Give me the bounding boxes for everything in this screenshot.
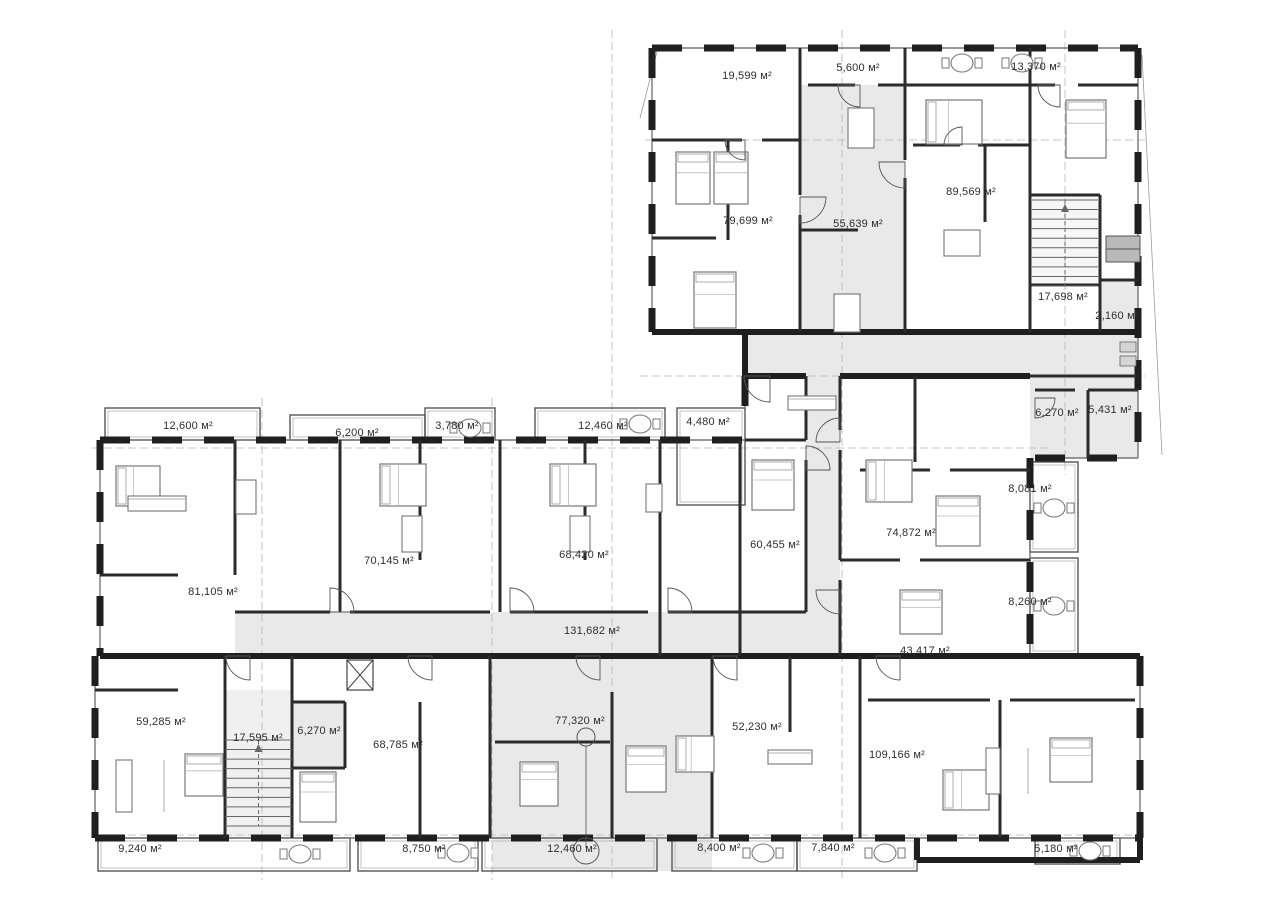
bed-frame [943,770,989,810]
chair [776,848,783,858]
area-label-balcony-9240: 9,240 м² [118,843,162,855]
chair [280,849,287,859]
chair [942,58,949,68]
table [944,230,980,256]
bed [1066,100,1106,158]
door-swing [408,656,432,680]
corridor [806,332,840,612]
sofa [768,750,812,764]
bed-frame [936,496,980,546]
area-label-balcony-8081: 8,081 м² [1008,483,1052,495]
bed [926,100,982,144]
area-label-balcony-12460-bottom: 12,460 м² [547,843,597,855]
area-label-apartment-68420: 68,420 м² [559,549,609,561]
bed [520,762,558,806]
area-label-balcony-4480: 4,480 м² [686,416,730,428]
balcony-table [1034,499,1074,517]
area-label-terrace-5600: 5,600 м² [836,62,880,74]
area-label-stair-17698: 17,698 м² [1038,291,1088,303]
corridor [745,332,1138,376]
area-label-balcony-7840: 7,840 м² [811,842,855,854]
area-label-balcony-12600: 12,600 м² [163,420,213,432]
bed-frame [752,460,794,510]
area-label-apartment-79699: 79,699 м² [723,215,773,227]
area-label-apartment-55639: 55,639 м² [833,218,883,230]
table-top [629,415,651,433]
area-label-stair-17595: 17,595 м² [233,732,283,744]
floor-plan-canvas: 19,599 м²5,600 м²13,370 м²79,699 м²55,63… [0,0,1280,905]
area-label-apartment-109166: 109,166 м² [869,749,925,761]
area-label-room-6270-bottom: 6,270 м² [297,725,341,737]
door-swing [1038,85,1060,107]
door-swing [226,656,250,680]
bed-frame [380,464,426,506]
bed [694,272,736,328]
chair [898,848,905,858]
area-label-balcony-8400: 8,400 м² [697,842,741,854]
bed [752,460,794,510]
chair [483,423,490,433]
area-label-corridor-131682: 131,682 м² [564,625,620,637]
bed [936,496,980,546]
bed-frame [550,464,596,506]
area-label-apartment-77320: 77,320 м² [555,715,605,727]
door-swing [510,588,534,612]
area-label-apartment-43417: 43,417 м² [900,645,950,657]
bed-frame [300,772,336,822]
area-label-apartment-59285: 59,285 м² [136,716,186,728]
bed [900,590,942,634]
bed [550,464,596,506]
floor-plan-svg: 19,599 м²5,600 м²13,370 м²79,699 м²55,63… [0,0,1280,905]
bed-frame [626,746,666,792]
corridor-131682 [235,612,840,656]
bed-frame [676,152,710,204]
area-label-terrace-19599: 19,599 м² [722,70,772,82]
survey-line [1142,55,1162,455]
area-label-balcony-8260: 8,260 м² [1008,596,1052,608]
area-label-terrace-13370: 13,370 м² [1011,61,1061,73]
bed-frame [866,460,912,502]
chair [1103,846,1110,856]
chair [1067,503,1074,513]
area-label-apartment-52230: 52,230 м² [732,721,782,733]
sofa [788,396,836,410]
door-swing [330,588,354,612]
chair [975,58,982,68]
bed [676,736,714,772]
area-label-balcony-3780: 3,780 м² [435,420,479,432]
area-label-apartment-70145: 70,145 м² [364,555,414,567]
door-swing [713,656,737,680]
sofa [128,496,186,511]
table [570,516,590,552]
bed [676,152,710,204]
bed [943,770,989,810]
bed [1050,738,1092,782]
area-label-apartment-74872: 74,872 м² [886,527,936,539]
balcony-table [743,844,783,862]
bed-frame [900,590,942,634]
chair [1002,58,1009,68]
chair [653,419,660,429]
bed-frame [520,762,558,806]
chair [1034,503,1041,513]
area-label-room-2160: 2,160 м² [1095,310,1139,322]
area-label-apartment-81105: 81,105 м² [188,586,238,598]
bed-frame [694,272,736,328]
chair [313,849,320,859]
bed [626,746,666,792]
chair [865,848,872,858]
balcony-table [280,845,320,863]
door-swing [876,656,900,680]
table-top [752,844,774,862]
bed [300,772,336,822]
bed-frame [926,100,982,144]
duct-unit [1120,356,1136,366]
table-top [951,54,973,72]
chair [1067,601,1074,611]
shaded-balcony [492,838,712,871]
balcony-table [942,54,982,72]
table-top [1043,499,1065,517]
sofa [986,748,1000,794]
chair [743,848,750,858]
table [402,516,422,552]
bed [866,460,912,502]
table-top [874,844,896,862]
area-label-balcony-5180: 5,180 м² [1034,843,1078,855]
table [834,294,860,332]
balcony-table [865,844,905,862]
area-label-apartment-68785: 68,785 м² [373,739,423,751]
area-label-balcony-6200: 6,200 м² [335,427,379,439]
duct-unit [1120,342,1136,352]
table-top [1079,842,1101,860]
bed-frame [1050,738,1092,782]
room-2160 [1100,280,1138,332]
area-label-apartment-60455: 60,455 м² [750,539,800,551]
bed-frame [676,736,714,772]
chair [471,848,478,858]
table [236,480,256,514]
area-label-room-6270-top: 6,270 м² [1035,407,1079,419]
area-label-apartment-89569: 89,569 м² [946,186,996,198]
door-swing [668,588,692,612]
table [848,108,874,148]
bed-frame [185,754,223,796]
area-label-balcony-12460-top: 12,460 м² [578,420,628,432]
bed [380,464,426,506]
table [646,484,662,512]
sofa [116,760,132,812]
area-label-room-5431: 5,431 м² [1088,404,1132,416]
bed [185,754,223,796]
table-top [289,845,311,863]
area-label-balcony-8750: 8,750 м² [402,843,446,855]
table-top [447,844,469,862]
bed-frame [1066,100,1106,158]
